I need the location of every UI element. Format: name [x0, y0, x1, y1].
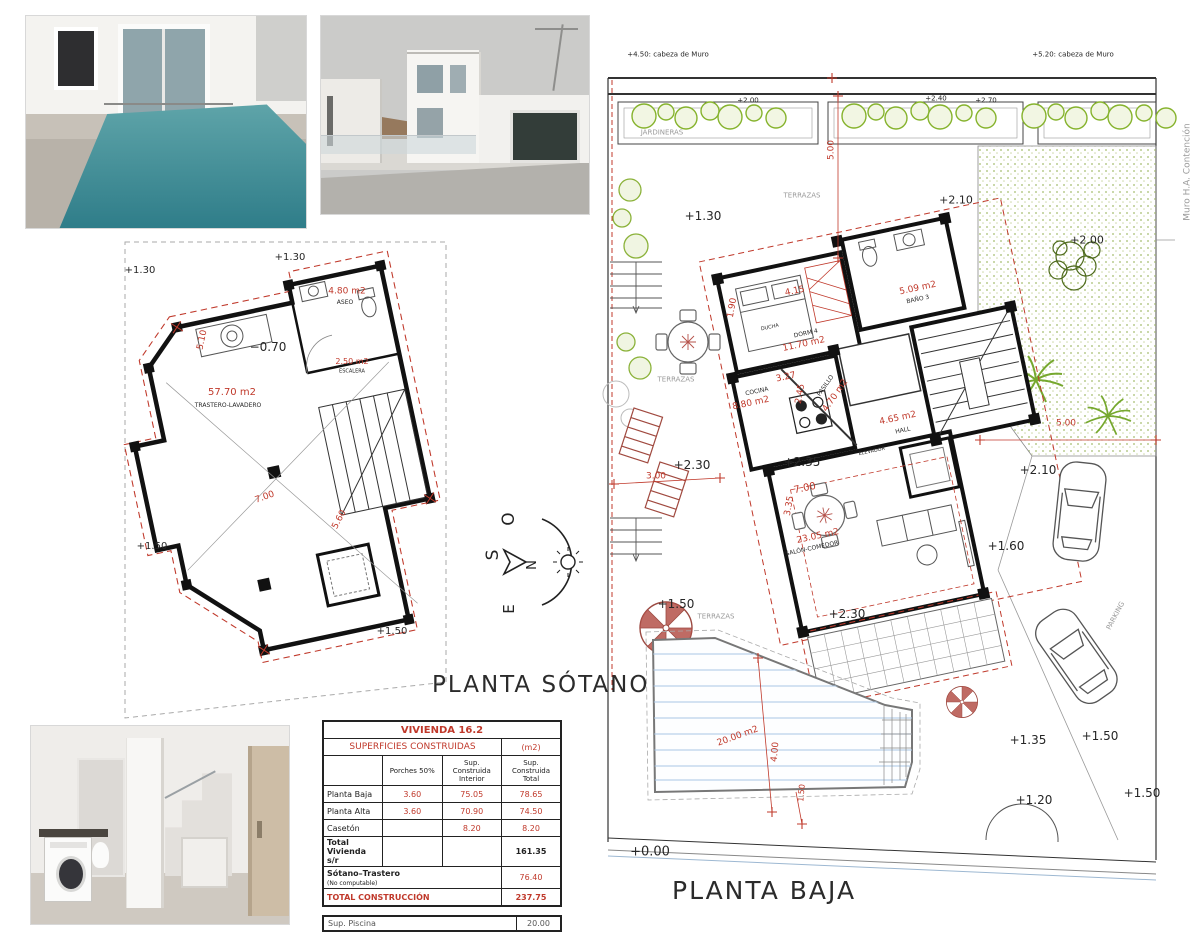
table-title: VIVIENDA 16.2 — [323, 721, 561, 739]
photo-house-exterior — [320, 15, 590, 215]
plants — [632, 102, 786, 129]
loungers — [619, 408, 688, 517]
sotano-label-cell: Sótano–Trastero (No computable) — [323, 867, 502, 889]
sky — [250, 16, 306, 101]
title-planta-baja: PLANTA BAJA — [672, 876, 856, 905]
row-value: 70.90 — [442, 803, 502, 820]
plants — [1022, 102, 1176, 129]
sotano-building — [96, 251, 465, 681]
sotano-sublabel: (No computable) — [327, 880, 377, 887]
left-bushes — [613, 179, 651, 379]
row-label: Planta Baja — [323, 786, 383, 803]
baja-plan-svg — [600, 50, 1175, 880]
entrance-gate — [986, 804, 1058, 842]
piscina-table: Sup. Piscina 20.00 — [322, 915, 562, 932]
car-bottom — [1029, 603, 1123, 710]
balcony-rail — [104, 103, 233, 105]
under-stair-closet — [181, 837, 229, 889]
compass: O S N E — [490, 503, 582, 621]
crane-mast — [552, 24, 563, 91]
window — [54, 27, 98, 90]
sotano-plan-svg — [70, 230, 470, 720]
row-value: 75.05 — [442, 786, 502, 803]
total-vivienda-label: Total Vivienda s/r — [323, 837, 383, 867]
compass-n: N — [525, 560, 540, 570]
sotano-label: Sótano–Trastero — [327, 869, 400, 878]
wood-door — [248, 746, 290, 916]
surfaces-table: VIVIENDA 16.2 SUPERFICIES CONSTRUIDAS (m… — [322, 720, 562, 939]
table-subtitle: SUPERFICIES CONSTRUIDAS — [323, 739, 502, 756]
table-subtitle-unit: (m2) — [502, 739, 562, 756]
total-construccion-value: 237.75 — [502, 889, 562, 907]
row-value: 8.20 — [502, 820, 562, 837]
plants — [842, 102, 996, 129]
compass-s: S — [483, 550, 503, 561]
compass-e: E — [500, 604, 518, 613]
stove — [789, 391, 832, 434]
row-value: 74.50 — [502, 803, 562, 820]
garage-wall — [479, 95, 589, 162]
exterior-walls — [109, 266, 454, 668]
title-planta-sotano: PLANTA SÓTANO — [432, 672, 649, 698]
terrace-table — [656, 310, 720, 374]
sotano-value: 76.40 — [502, 867, 562, 889]
row-label: Planta Alta — [323, 803, 383, 820]
col-porches: Porches 50% — [383, 756, 443, 786]
sliding-door — [118, 24, 209, 119]
countertop — [39, 829, 109, 837]
room-bano3 — [842, 218, 965, 330]
car-top — [1052, 460, 1108, 562]
north-arrow — [504, 550, 526, 574]
compass-o: O — [499, 512, 519, 525]
col-total: Sup. Construida Total — [502, 756, 562, 786]
crane-jib — [535, 28, 578, 30]
row-value: 78.65 — [502, 786, 562, 803]
piscina-label: Sup. Piscina — [323, 916, 517, 931]
elevator-shaft — [317, 544, 379, 606]
col-interior: Sup. Construida Interior — [442, 756, 502, 786]
washing-machine — [44, 837, 92, 902]
plan-sheet: O S N E PLANTA SÓTANO PLANTA BAJA VIVIEN… — [0, 0, 1200, 939]
photo-pool-exterior — [25, 15, 307, 229]
row-value: 3.60 — [383, 786, 443, 803]
piscina-value: 20.00 — [517, 916, 562, 931]
row-value: 3.60 — [383, 803, 443, 820]
column — [126, 738, 164, 908]
plan-label: Muro H.A. Contención — [1184, 123, 1193, 220]
total-construccion-label: TOTAL CONSTRUCCIÓN — [323, 889, 502, 907]
row-value — [383, 820, 443, 837]
glass-fence — [321, 135, 476, 154]
row-value: 8.20 — [442, 820, 502, 837]
row-label: Casetón — [323, 820, 383, 837]
elevator — [900, 438, 959, 497]
photo-interior-basement — [30, 725, 290, 925]
parasol-small — [946, 686, 977, 717]
sun-icon — [553, 547, 583, 577]
total-vivienda-value: 161.35 — [502, 837, 562, 867]
